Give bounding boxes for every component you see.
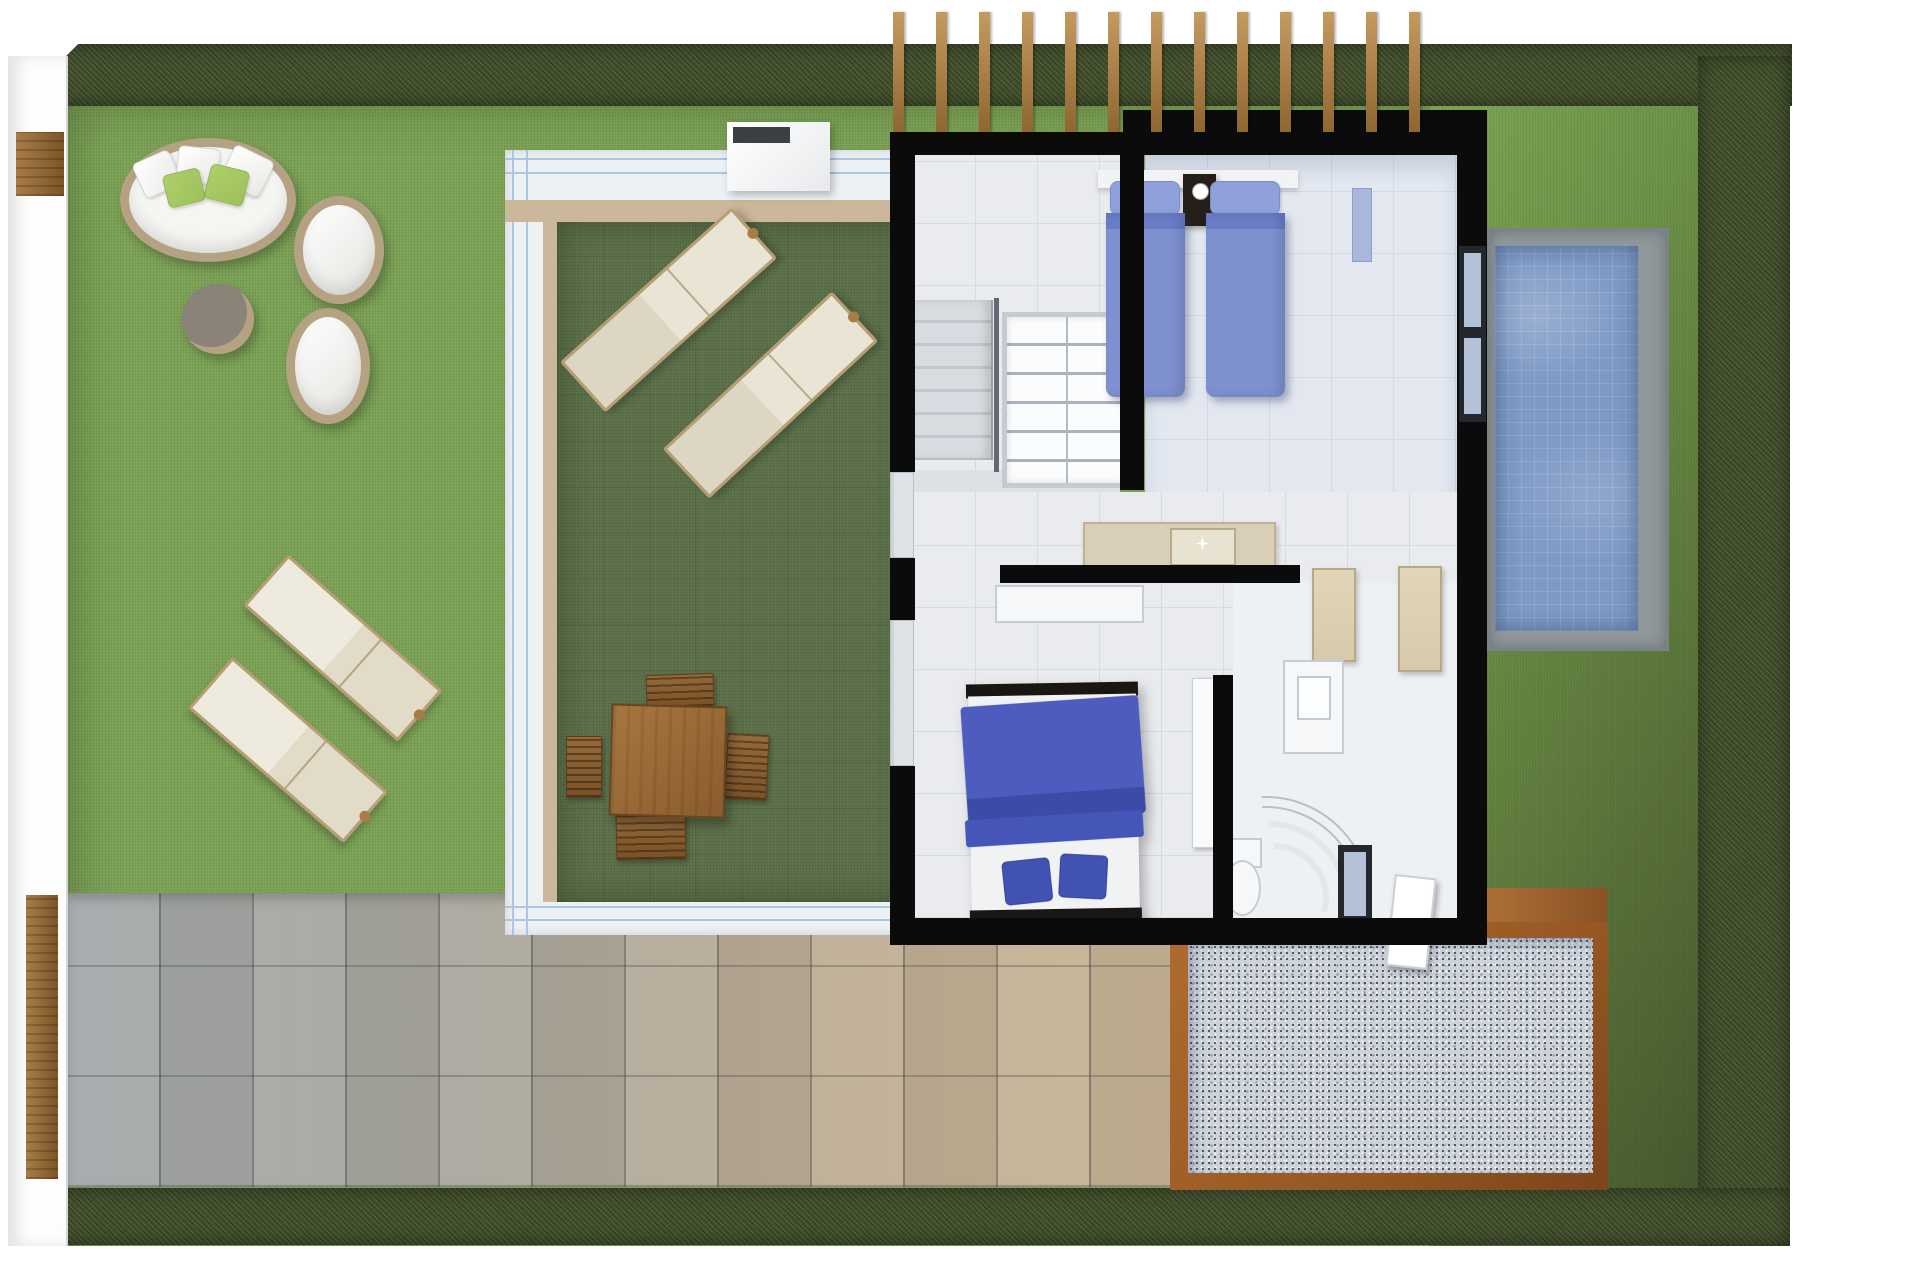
glass-railing-bottom-inner — [505, 919, 915, 921]
pergola-slat — [1366, 12, 1377, 132]
gravel-bed — [1188, 938, 1593, 1173]
pergola-slat — [936, 12, 947, 132]
wall-bathroom-west — [1213, 675, 1233, 918]
pergola-beams — [893, 12, 1433, 132]
glass-railing-left-inner — [526, 150, 528, 935]
pergola-slat — [1151, 12, 1162, 132]
pergola-slat — [1194, 12, 1205, 132]
lounger-fold-line — [768, 354, 812, 401]
hedge-right — [1698, 56, 1790, 1246]
pergola-slat — [1280, 12, 1291, 132]
pergola-slat — [1409, 12, 1420, 132]
bedroom-window-east — [1459, 246, 1486, 422]
glass-railing-top-inner — [505, 172, 915, 174]
media-console — [995, 585, 1144, 623]
egg-chair-2 — [286, 308, 370, 424]
bathroom-window-south — [1338, 845, 1372, 923]
cabinet-glass-door — [1297, 676, 1331, 720]
window-glass — [1464, 338, 1481, 414]
staircase — [913, 300, 993, 460]
dining-chair-east — [724, 733, 769, 801]
stair-railing — [994, 298, 999, 472]
wall-south — [905, 918, 1487, 945]
dining-chair-west — [566, 736, 602, 798]
dining-table — [609, 704, 728, 819]
wall-east — [1457, 110, 1487, 945]
terrace-edge-top — [505, 200, 915, 222]
glass-railing-top-outer — [505, 158, 915, 160]
twin-bed-2 — [1206, 213, 1285, 397]
bed-cushion-1 — [1001, 857, 1053, 906]
lounger-fold-line — [284, 741, 326, 789]
sliding-door-2 — [890, 620, 914, 766]
pergola-slat — [1065, 12, 1076, 132]
egg-chair-1 — [294, 196, 384, 304]
skylight-box — [727, 122, 830, 191]
bed-cushion-2 — [1058, 853, 1108, 899]
glass-railing-left-outer — [512, 150, 514, 935]
wood-deck-band — [1470, 888, 1607, 922]
table-lamp — [1192, 183, 1209, 200]
sliding-door-1 — [890, 472, 914, 558]
glass-railing-bottom-outer — [505, 906, 915, 908]
ottoman-table — [182, 284, 254, 354]
skylight-vent-slot — [733, 127, 790, 143]
bathroom-cabinet-b — [1398, 566, 1442, 672]
window-glass — [1464, 253, 1481, 327]
master-bed — [966, 682, 1142, 932]
dining-chair-south — [616, 813, 687, 860]
twin-bed-1 — [1106, 213, 1185, 397]
wall-stair-east — [1120, 132, 1144, 490]
bed-duvet — [960, 695, 1146, 825]
wall-west-mid — [890, 558, 915, 620]
twin-pillow-2 — [1210, 181, 1280, 215]
daybed-pillow-green — [161, 167, 206, 209]
pergola-slat — [979, 12, 990, 132]
bathroom-cabinet-a — [1312, 568, 1356, 662]
wall-divider-north — [1000, 565, 1300, 583]
bathroom-door — [1192, 678, 1214, 848]
wall-west-upper — [890, 132, 915, 472]
pergola-slat — [1237, 12, 1248, 132]
swimming-pool — [1495, 246, 1638, 631]
garden-gate-south — [26, 895, 58, 1179]
hedge-bottom — [54, 1188, 1790, 1245]
terrace-edge-left — [543, 200, 557, 902]
pergola-slat — [1108, 12, 1119, 132]
wall-north-left — [905, 132, 1123, 155]
garden-gate-north — [16, 132, 64, 196]
pergola-slat — [1323, 12, 1334, 132]
towel-shelf — [1352, 188, 1372, 262]
pergola-slat — [893, 12, 904, 132]
round-daybed — [120, 138, 296, 262]
wall-cabinet — [1283, 660, 1344, 754]
window-glass — [1344, 852, 1366, 916]
floor-plan-render — [0, 0, 1920, 1280]
lounger-fold-line — [339, 639, 382, 687]
lounger-fold-line — [666, 269, 709, 316]
pergola-slat — [1022, 12, 1033, 132]
